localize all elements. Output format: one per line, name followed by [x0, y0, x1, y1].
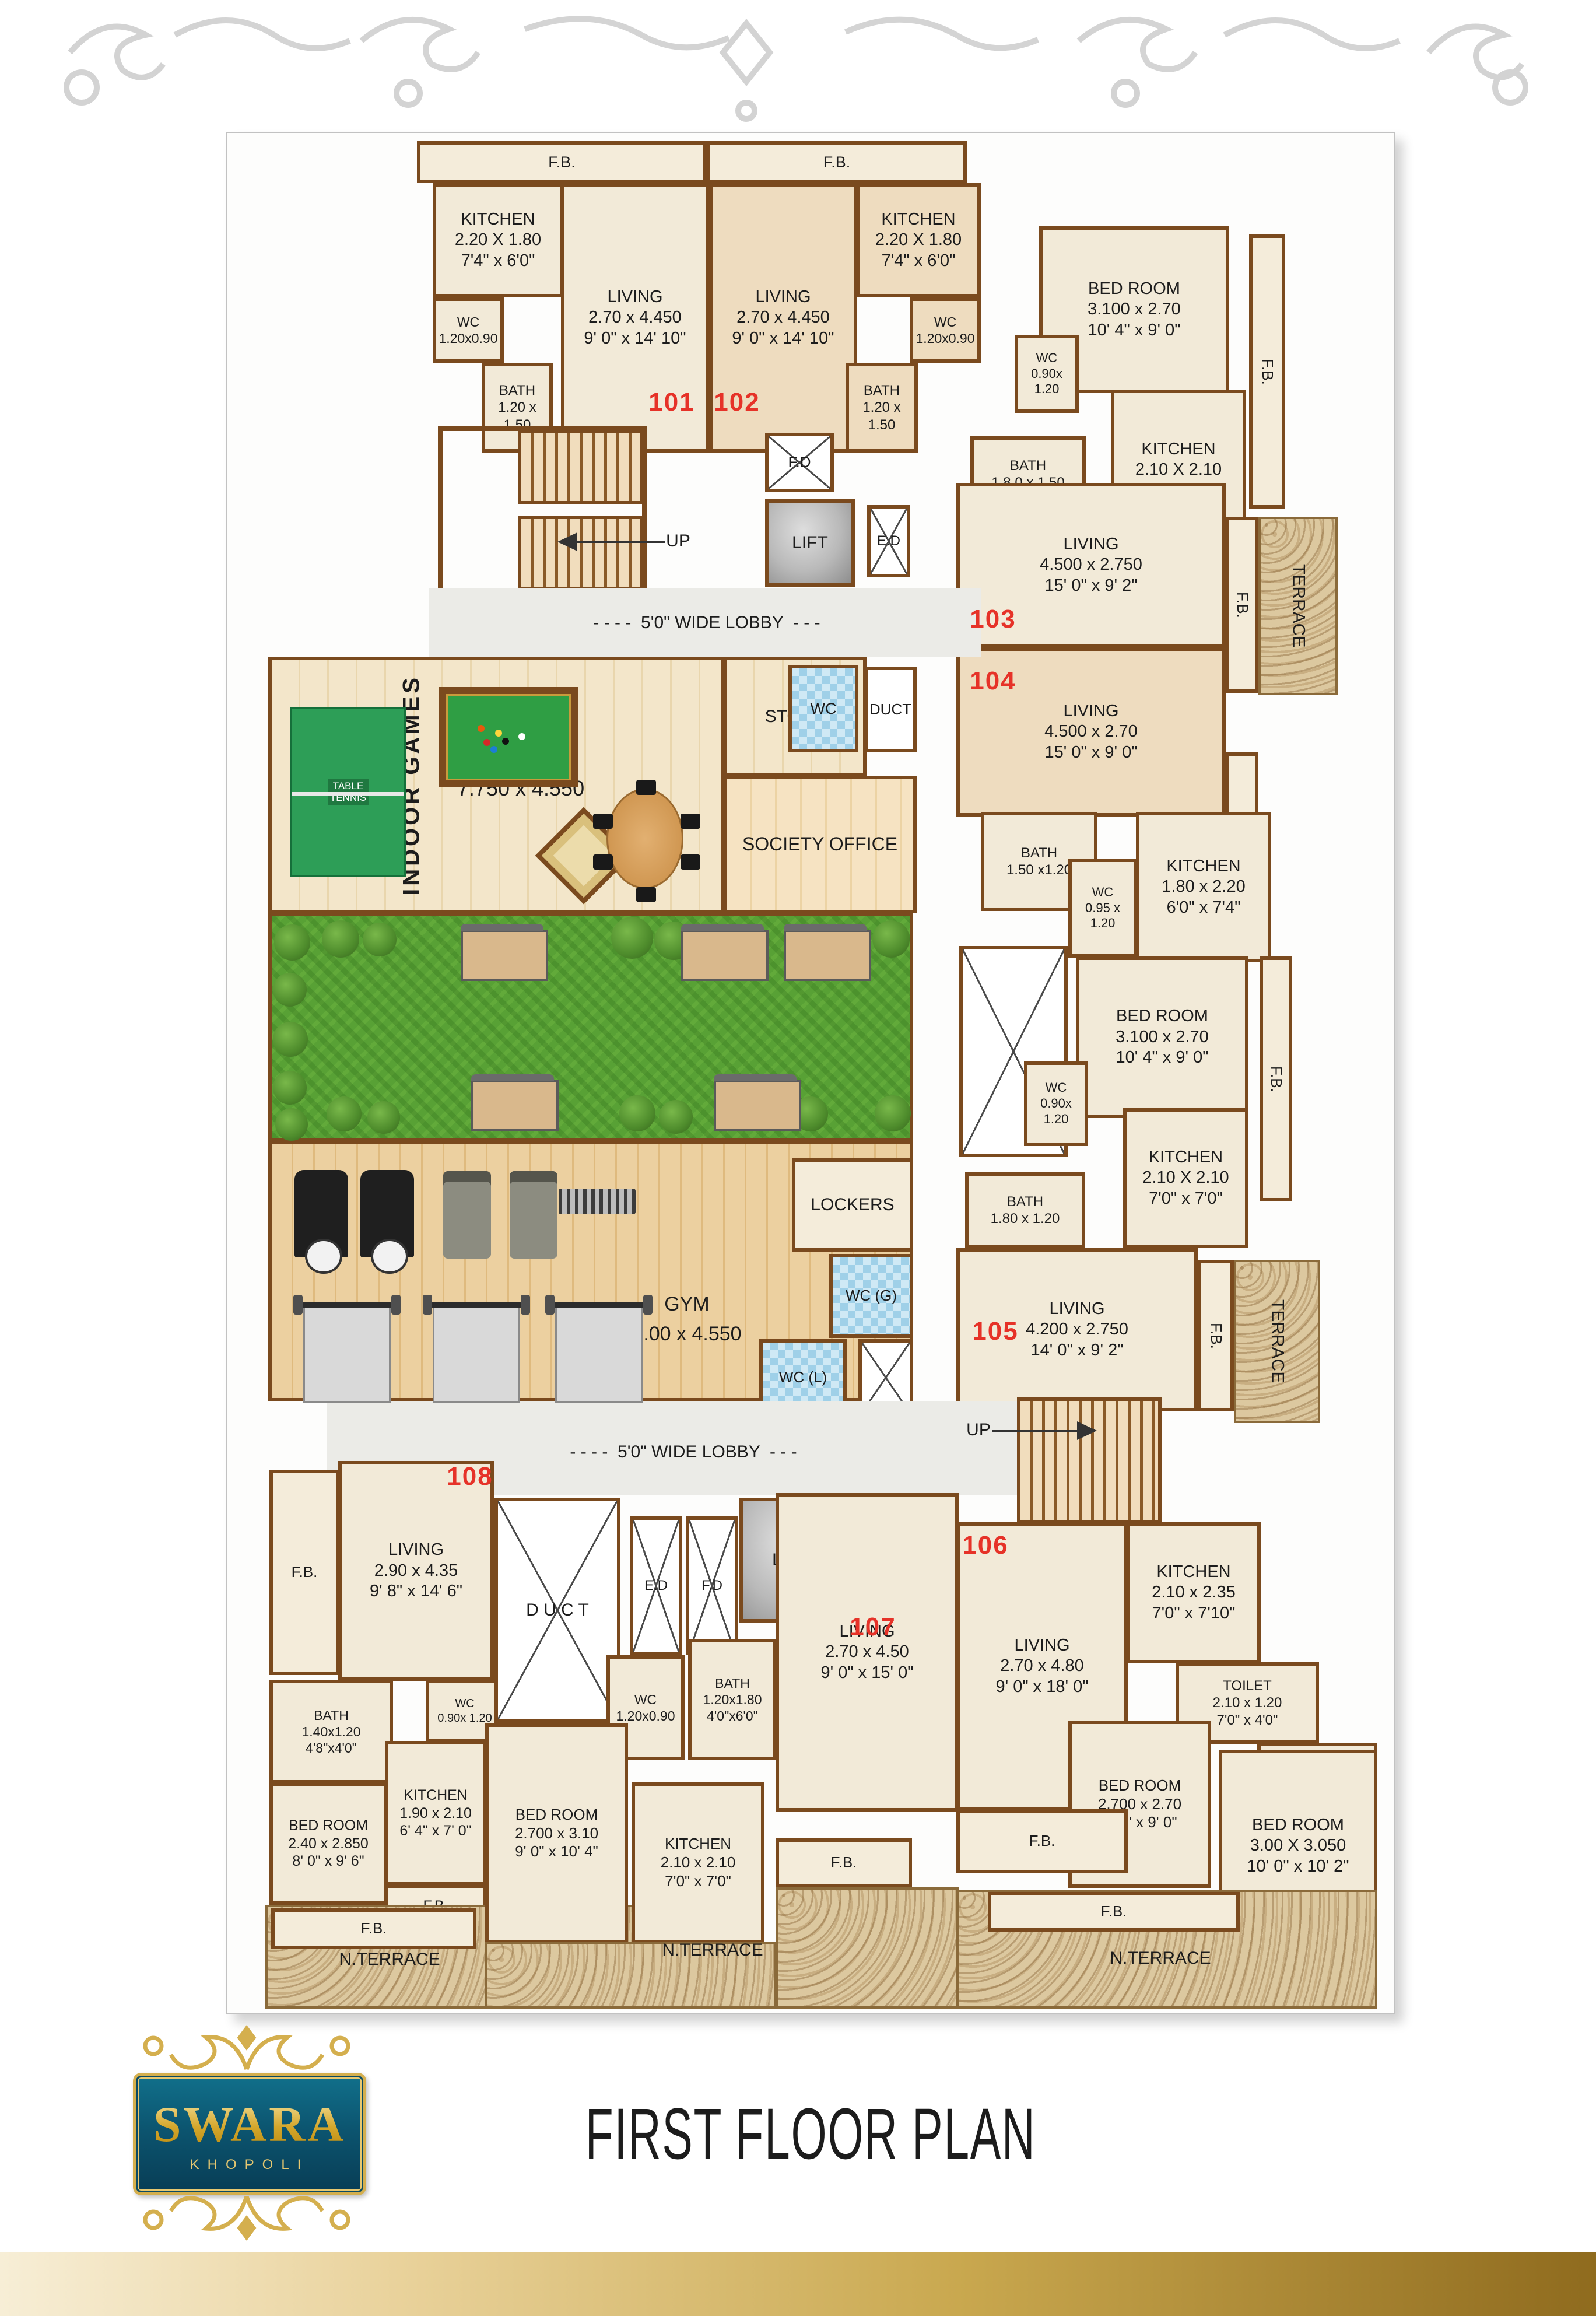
living-103-label: 4.500 x 2.750	[1040, 555, 1142, 575]
kitchen-106: KITCHEN2.10 x 2.357'0" x 7'10"	[1127, 1522, 1261, 1663]
wc-107-label: WC	[616, 1691, 675, 1708]
bath-108-label: 1.40x1.20	[301, 1723, 360, 1740]
kitchen-107: KITCHEN2.10 x 2.107'0" x 7'0"	[632, 1782, 764, 1943]
wc-103-label: WC	[1031, 351, 1062, 366]
kitchen-107-label: 2.10 x 2.10	[661, 1853, 736, 1872]
bench-icon	[461, 930, 548, 981]
living-102-label: 2.70 x 4.450	[732, 307, 834, 328]
rack-icon	[559, 1189, 636, 1214]
tree-icon	[619, 1095, 655, 1131]
fb-terr-left: F.B.	[271, 1908, 476, 1949]
living-107-label: 2.70 x 4.50	[820, 1642, 913, 1662]
living-106-label: 2.70 x 4.80	[995, 1656, 1088, 1676]
lockers: LOCKERS	[792, 1158, 913, 1252]
bath-105-label: BATH	[991, 1193, 1060, 1210]
fd-shaft-top: F.D	[765, 433, 834, 492]
up-arrow	[992, 1430, 1077, 1432]
bath-102-label: BATH	[862, 382, 900, 399]
kitchen-101-label: KITCHEN	[455, 209, 541, 230]
bedroom-106-b-label: BED ROOM	[1247, 1815, 1349, 1835]
living-106-label: 9' 0" x 18' 0"	[995, 1677, 1088, 1697]
tree-icon	[273, 1022, 308, 1057]
kitchen-102-label: 7'4" x 6'0"	[875, 251, 962, 271]
kitchen-105-label: 2.10 X 2.10	[1142, 1168, 1229, 1188]
label-107: 107	[850, 1613, 896, 1642]
wc-gents-label: WC (G)	[846, 1287, 897, 1305]
bath-104-label: 1.50 x1.20	[1006, 861, 1072, 878]
kitchen-103-label: KITCHEN	[1135, 439, 1222, 460]
fb-106-label: F.B.	[1029, 1832, 1055, 1851]
bedroom-103-unit-label: BED ROOM	[1088, 279, 1181, 299]
fb-105-b: F.B.	[1198, 1260, 1234, 1411]
up-arrow-head-icon	[557, 532, 577, 551]
wc-games-label: WC	[811, 699, 837, 719]
kitchen-101-label: 2.20 X 1.80	[455, 230, 541, 250]
ed-shaft-bottom: E.D	[630, 1516, 682, 1655]
wc-107-label: 1.20x0.90	[616, 1708, 675, 1724]
bench-icon	[471, 1080, 559, 1131]
fb-103-vert: F.B.	[1249, 234, 1285, 509]
label-104: 104	[970, 667, 1016, 696]
ellip-icon	[443, 1171, 491, 1259]
living-107-label: 9' 0" x 15' 0"	[820, 1663, 913, 1683]
fb-101: F.B.	[417, 141, 707, 183]
lockers-label: LOCKERS	[811, 1194, 894, 1216]
label-106: 106	[962, 1531, 1008, 1560]
kitchen-102-label: KITCHEN	[875, 209, 962, 230]
wc-104: WC0.95 x1.20	[1068, 859, 1137, 958]
bath-108-label: BATH	[301, 1707, 360, 1723]
bath-104-label: BATH	[1006, 845, 1072, 861]
kitchen-108-label: KITCHEN	[399, 1786, 472, 1805]
toilet-106-a-label: 7'0" x 4'0"	[1213, 1712, 1282, 1729]
project-logo: SWARA KHOPOLI	[110, 2023, 384, 2244]
duct-bottom: D U C T	[494, 1498, 620, 1723]
bedroom-106-a-label: BED ROOM	[1098, 1777, 1181, 1795]
wc-games: WC	[788, 665, 858, 752]
kitchen-108: KITCHEN1.90 x 2.106' 4" x 7' 0"	[385, 1741, 486, 1886]
wc-108-label: WC	[437, 1697, 492, 1711]
fb-108-left: F.B.	[269, 1470, 339, 1675]
kitchen-102: KITCHEN2.20 X 1.807'4" x 6'0"	[856, 183, 981, 297]
fb-105-right: F.B.	[1260, 956, 1292, 1201]
chair-icon	[593, 814, 613, 829]
bath-101-label: BATH	[498, 382, 536, 399]
wc-102-label: WC	[915, 314, 974, 330]
ed-shaft-top: E.D	[867, 505, 910, 577]
chair-icon	[636, 887, 656, 902]
bath-101-label: 1.20 x	[498, 399, 536, 416]
terrace-105: TERRACE	[1234, 1260, 1320, 1423]
kitchen-104-label: KITCHEN	[1162, 856, 1246, 877]
label-up: UP	[666, 531, 690, 551]
living-106-label: LIVING	[995, 1635, 1088, 1656]
kitchen-101-label: 7'4" x 6'0"	[455, 251, 541, 271]
wc-105-label: WC	[1040, 1080, 1072, 1096]
ed-shaft-top-label: E.D	[877, 532, 900, 549]
fd-shaft-bottom-label: F.D	[701, 1577, 722, 1594]
tree-icon	[367, 1101, 400, 1134]
label-103: 103	[970, 605, 1016, 634]
tree-icon	[273, 973, 307, 1007]
bpress-icon	[555, 1304, 643, 1403]
bedroom-107-label: BED ROOM	[515, 1806, 598, 1824]
bedroom-105: BED ROOM3.100 x 2.7010' 4" x 9' 0"	[1076, 956, 1248, 1118]
living-104-label: 15' 0" x 9' 0"	[1044, 742, 1138, 763]
tree-icon	[875, 1095, 911, 1131]
bath-107-label: 1.20x1.80	[703, 1691, 762, 1708]
living-104-label: 4.500 x 2.70	[1044, 721, 1138, 742]
living-107: LIVING2.70 x 4.509' 0" x 15' 0"	[776, 1493, 959, 1812]
chair-icon	[681, 854, 700, 870]
label-102: 102	[714, 388, 760, 417]
bath-102-label: 1.20 x	[862, 399, 900, 416]
label-n-terrace: N.TERRACE	[662, 1940, 763, 1960]
chair-icon	[681, 814, 700, 829]
treadmill-icon	[360, 1170, 414, 1257]
living-103-label: 15' 0" x 9' 2"	[1040, 576, 1142, 596]
bath-102-label: 1.50	[862, 416, 900, 433]
kitchen-108-label: 1.90 x 2.10	[399, 1805, 472, 1823]
living-101-label: LIVING	[584, 287, 686, 307]
lift-top: LIFT	[765, 499, 855, 587]
fb-terr-left-label: F.B.	[361, 1919, 387, 1938]
fb-terr-right: F.B.	[988, 1892, 1240, 1932]
footer-gold-bar	[0, 2252, 1596, 2316]
fb-105-b-label: F.B.	[1206, 1323, 1225, 1349]
up-arrow	[577, 541, 665, 543]
ellip-icon	[510, 1171, 557, 1259]
kitchen-101: KITCHEN2.20 X 1.807'4" x 6'0"	[433, 183, 563, 297]
living-105-label: 14' 0" x 9' 2"	[1026, 1340, 1128, 1361]
bedroom-107-label: 9' 0" x 10' 4"	[515, 1842, 598, 1861]
kitchen-108-label: 6' 4" x 7' 0"	[399, 1822, 472, 1840]
label--5-0-wide-lobby-: - - - - 5'0" WIDE LOBBY - - -	[570, 1442, 797, 1462]
wc-103-label: 1.20	[1031, 381, 1062, 397]
tree-icon	[363, 923, 397, 956]
logo-name: SWARA	[153, 2095, 346, 2153]
wc-104-label: 1.20	[1085, 916, 1120, 931]
bedroom-108: BED ROOM2.40 x 2.8508' 0" x 9' 6"	[269, 1782, 387, 1905]
society-office-label: SOCIETY OFFICE	[742, 833, 897, 856]
logo-flourish-bottom-icon	[130, 2193, 363, 2243]
label-n-terrace: N.TERRACE	[1110, 1949, 1211, 1968]
bedroom-105-label: BED ROOM	[1116, 1006, 1209, 1026]
kitchen-102-label: 2.20 X 1.80	[875, 230, 962, 250]
logo-subtitle: KHOPOLI	[190, 2157, 310, 2173]
fb-107-label: F.B.	[831, 1853, 857, 1872]
pool-icon	[439, 687, 578, 787]
kitchen-106-label: KITCHEN	[1152, 1562, 1236, 1582]
logo-flourish-top-icon	[130, 2023, 363, 2073]
fb-108-left-label: F.B.	[292, 1563, 318, 1582]
living-101-label: 2.70 x 4.450	[584, 307, 686, 328]
logo-plaque: SWARA KHOPOLI	[133, 2073, 366, 2195]
wc-105-label: 1.20	[1040, 1112, 1072, 1127]
fb-106: F.B.	[956, 1809, 1128, 1873]
stairs-top-flight2	[518, 516, 644, 590]
fb-103-vert-label: F.B.	[1258, 359, 1276, 385]
living-104-label: LIVING	[1044, 701, 1138, 721]
kitchen-105-label: 7'0" x 7'0"	[1142, 1189, 1229, 1209]
bath-107-label: 4'0"x6'0"	[703, 1708, 762, 1724]
bedroom-106-b-label: 10' 0" x 10' 2"	[1247, 1856, 1349, 1877]
bath-108-label: 4'8"x4'0"	[301, 1740, 360, 1756]
living-108: LIVING2.90 x 4.359' 8" x 14' 6"	[338, 1461, 494, 1681]
tree-icon	[872, 920, 910, 958]
bedroom-103-unit-label: 10' 4" x 9' 0"	[1088, 320, 1181, 341]
kitchen-104-label: 6'0" x 7'4"	[1162, 898, 1246, 918]
terrace-103: TERRACE	[1258, 517, 1338, 695]
living-108-label: 9' 8" x 14' 6"	[370, 1581, 462, 1602]
terrace-mid	[776, 1887, 959, 2009]
bedroom-108-label: 2.40 x 2.850	[288, 1835, 369, 1853]
kitchen-107-label: KITCHEN	[661, 1835, 736, 1853]
fb-terr-right-label: F.B.	[1101, 1902, 1127, 1921]
bench-icon	[784, 930, 871, 981]
bench-icon	[681, 930, 769, 981]
bedroom-107: BED ROOM2.700 x 3.109' 0" x 10' 4"	[485, 1723, 628, 1943]
label-108: 108	[447, 1462, 493, 1491]
bedroom-107-label: 2.700 x 3.10	[515, 1824, 598, 1843]
bedroom-105-label: 10' 4" x 9' 0"	[1116, 1047, 1209, 1068]
tree-icon	[327, 1096, 362, 1131]
treadmill-icon	[294, 1170, 348, 1257]
kitchen-105-label: KITCHEN	[1142, 1147, 1229, 1168]
toilet-106-a-label: TOILET	[1213, 1677, 1282, 1694]
wc-103-label: 0.90x	[1031, 366, 1062, 382]
bpress-icon	[303, 1304, 391, 1403]
living-102-label: 9' 0" x 14' 10"	[732, 328, 834, 349]
bedroom-108-label: 8' 0" x 9' 6"	[288, 1852, 369, 1870]
chair-icon	[636, 780, 656, 795]
bedroom-108-label: BED ROOM	[288, 1817, 369, 1835]
tree-icon	[274, 924, 310, 961]
bedroom-103-unit-label: 3.100 x 2.70	[1088, 299, 1181, 320]
bath-108: BATH1.40x1.204'8"x4'0"	[269, 1680, 393, 1784]
wc-103: WC0.90x1.20	[1015, 335, 1079, 413]
living-105-label: 4.200 x 2.750	[1026, 1319, 1128, 1340]
wc-108-label: 0.90x 1.20	[437, 1711, 492, 1725]
kitchen-104: KITCHEN1.80 x 2.206'0" x 7'4"	[1136, 812, 1271, 962]
label--5-0-wide-lobby-: - - - - 5'0" WIDE LOBBY - - -	[593, 613, 820, 633]
wc-104-label: WC	[1085, 885, 1120, 901]
kitchen-103-label: 2.10 X 2.10	[1135, 460, 1222, 480]
wc-105-label: 0.90x	[1040, 1096, 1072, 1112]
bedroom-105-label: 3.100 x 2.70	[1116, 1027, 1209, 1047]
wc-101-label: 1.20x0.90	[439, 330, 497, 346]
wc-101: WC1.20x0.90	[433, 297, 504, 363]
living-103-label: LIVING	[1040, 534, 1142, 555]
wc-102-label: 1.20x0.90	[915, 330, 974, 346]
bpress-icon	[433, 1304, 520, 1403]
fd-shaft-bottom: F.D	[686, 1516, 738, 1655]
label-101: 101	[648, 388, 694, 417]
fb-102-label: F.B.	[823, 153, 851, 172]
wc-105: WC0.90x1.20	[1024, 1061, 1088, 1146]
wc-101-label: WC	[439, 314, 497, 330]
kitchen-107-label: 7'0" x 7'0"	[661, 1872, 736, 1891]
bath-105-label: 1.80 x 1.20	[991, 1210, 1060, 1227]
duct-games: DUCT	[864, 667, 917, 752]
bedroom-106-b-label: 3.00 X 3.050	[1247, 1835, 1349, 1856]
fd-shaft-top-label: F.D	[788, 453, 811, 472]
plan-canvas: F.B.F.B.KITCHEN2.20 X 1.807'4" x 6'0"LIV…	[0, 0, 1596, 2316]
stairs-top-flight1	[518, 430, 644, 504]
living-105-label: LIVING	[1026, 1299, 1128, 1319]
terrace-105-label: TERRACE	[1267, 1299, 1288, 1383]
chair-icon	[593, 854, 613, 870]
ovaltable-icon	[606, 789, 683, 889]
bath-102: BATH1.20 x1.50	[846, 363, 918, 453]
tt-icon: TABLETENNIS	[290, 707, 406, 877]
kitchen-105: KITCHEN2.10 X 2.107'0" x 7'0"	[1123, 1108, 1248, 1248]
toilet-106-a-label: 2.10 x 1.20	[1213, 1694, 1282, 1711]
fb-103-right-label: F.B.	[1233, 592, 1251, 618]
label-n-terrace: N.TERRACE	[339, 1950, 440, 1970]
bath-105: BATH1.80 x 1.20	[965, 1172, 1085, 1248]
duct-games-label: DUCT	[869, 700, 911, 719]
wc-104-label: 0.95 x	[1085, 901, 1120, 916]
tree-icon	[659, 1100, 693, 1134]
tree-icon	[322, 920, 359, 958]
page-title: FIRST FLOOR PLAN	[585, 2093, 1036, 2177]
wc-102: WC1.20x0.90	[910, 297, 981, 363]
lift-top-label: LIFT	[792, 532, 828, 554]
bath-103-label: BATH	[991, 457, 1064, 474]
up-arrow-head-icon	[1077, 1421, 1097, 1440]
label-105: 105	[972, 1317, 1018, 1346]
kitchen-106-label: 2.10 x 2.35	[1152, 1582, 1236, 1603]
duct-bottom-label: D U C T	[526, 1600, 589, 1621]
living-108-label: LIVING	[370, 1540, 462, 1560]
kitchen-104-label: 1.80 x 2.20	[1162, 877, 1246, 897]
fb-103-right: F.B.	[1226, 517, 1258, 693]
fb-107: F.B.	[776, 1838, 912, 1887]
tree-icon	[275, 1108, 308, 1141]
wc-gents: WC (G)	[829, 1254, 913, 1338]
bath-107: BATH1.20x1.804'0"x6'0"	[688, 1639, 777, 1760]
living-108-label: 2.90 x 4.35	[370, 1561, 462, 1581]
living-102-label: LIVING	[732, 287, 834, 307]
living-101-label: 9' 0" x 14' 10"	[584, 328, 686, 349]
wc-ladies-label: WC (L)	[779, 1368, 827, 1387]
tree-icon	[611, 917, 653, 959]
floor-plan-page: F.B.F.B.KITCHEN2.20 X 1.807'4" x 6'0"LIV…	[0, 0, 1596, 2316]
stairs-bottom	[1017, 1397, 1162, 1523]
bench-icon	[714, 1080, 801, 1131]
fb-101-label: F.B.	[548, 153, 576, 172]
kitchen-106-label: 7'0" x 7'10"	[1152, 1603, 1236, 1624]
fb-105-right-label: F.B.	[1267, 1066, 1285, 1092]
society-office: SOCIETY OFFICE	[723, 776, 917, 913]
tree-icon	[273, 1071, 307, 1105]
label-up: UP	[966, 1420, 991, 1440]
ed-shaft-bottom-label: E.D	[644, 1577, 668, 1594]
bath-107-label: BATH	[703, 1675, 762, 1691]
fb-102: F.B.	[707, 141, 967, 183]
terrace-103-label: TERRACE	[1288, 564, 1309, 647]
